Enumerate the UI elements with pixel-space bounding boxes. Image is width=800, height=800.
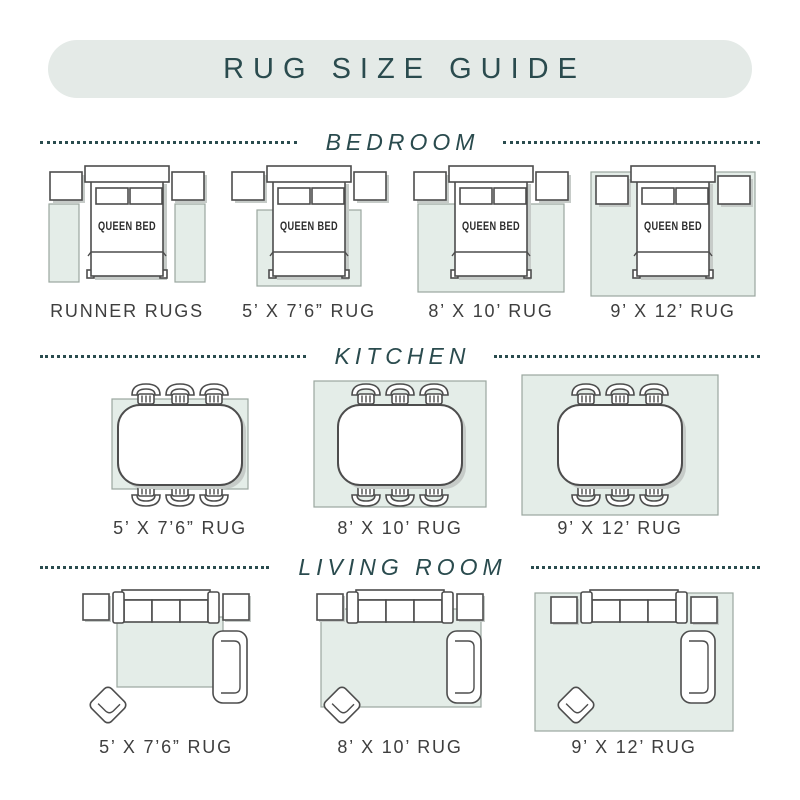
dotted-divider-left (40, 355, 306, 358)
bedroom-diagram-runner-rugs: RUNNER RUGS (42, 164, 212, 322)
armchair (681, 631, 715, 703)
bedroom-diagram-5x76: 5’ X 7’6” RUG (224, 164, 394, 322)
queen-bed (631, 166, 715, 280)
page-title: RUG SIZE GUIDE (214, 53, 586, 86)
rug-size-label: 5’ X 7’6” RUG (99, 737, 233, 758)
header-banner: RUG SIZE GUIDE (48, 40, 752, 98)
section-header-living-room: LIVING ROOM (40, 553, 760, 581)
accent-chair (88, 685, 128, 725)
armchair (447, 631, 481, 703)
kitchen-8x10-diagram (300, 374, 500, 516)
queen-bed (449, 166, 533, 280)
dotted-divider-right (503, 141, 760, 144)
dotted-divider-right (494, 355, 760, 358)
rug-size-label: 5’ X 7’6” RUG (242, 301, 376, 322)
kitchen-diagram-5x76: 5’ X 7’6” RUG (80, 374, 280, 539)
dotted-divider-left (40, 566, 269, 569)
bedroom-diagram-8x10: 8’ X 10’ RUG (406, 164, 576, 322)
nightstand-left (50, 172, 85, 203)
section-header-kitchen: KITCHEN (40, 342, 760, 370)
rug-size-label: RUNNER RUGS (50, 301, 204, 322)
living-room-diagram-8x10: 8’ X 10’ RUG (295, 585, 505, 758)
rug-size-label: 9’ X 12’ RUG (610, 301, 735, 322)
living-5x76-diagram (61, 585, 271, 735)
bedroom-row: RUNNER RUGS 5’ X 7’6” RUG 8’ X 10’ RUG (0, 164, 800, 322)
rug (117, 617, 223, 687)
queen-bed (85, 166, 169, 280)
dining-table (338, 405, 466, 489)
side-table-left (551, 597, 579, 625)
kitchen-diagram-9x12: 9’ X 12’ RUG (520, 374, 720, 539)
side-table-right (223, 594, 251, 622)
nightstand-right (718, 176, 753, 207)
bedroom-runner-diagram (42, 164, 212, 299)
sofa (113, 590, 219, 623)
rug-size-guide-page: RUG SIZE GUIDE BEDROOM RUNNER RUGS (0, 0, 800, 758)
section-title-living-room: LIVING ROOM (293, 554, 506, 581)
nightstand-right (172, 172, 207, 203)
rug-size-label: 9’ X 12’ RUG (571, 737, 696, 758)
side-table-left (317, 594, 345, 622)
living-room-diagram-9x12: 9’ X 12’ RUG (529, 585, 739, 758)
sofa (347, 590, 453, 623)
living-8x10-diagram (295, 585, 505, 735)
rug-size-label: 9’ X 12’ RUG (557, 518, 682, 539)
living-room-diagram-5x76: 5’ X 7’6” RUG (61, 585, 271, 758)
side-table-right (457, 594, 485, 622)
runner-rug-left (49, 204, 79, 282)
section-title-kitchen: KITCHEN (330, 343, 471, 370)
dining-table (118, 405, 246, 489)
nightstand-left (232, 172, 267, 203)
queen-bed (267, 166, 351, 280)
bedroom-8x10-diagram (406, 164, 576, 299)
dotted-divider-left (40, 141, 297, 144)
bedroom-5x76-diagram (224, 164, 394, 299)
kitchen-9x12-diagram (520, 374, 720, 516)
rug-size-label: 8’ X 10’ RUG (337, 518, 462, 539)
kitchen-row: 5’ X 7’6” RUG 8’ X 10’ RUG (0, 374, 800, 539)
kitchen-5x76-diagram (80, 374, 280, 516)
nightstand-right (536, 172, 571, 203)
living-9x12-diagram (529, 585, 739, 735)
nightstand-left (414, 172, 449, 203)
dining-table (558, 405, 686, 489)
side-table-left (83, 594, 111, 622)
section-header-bedroom: BEDROOM (40, 128, 760, 156)
kitchen-diagram-8x10: 8’ X 10’ RUG (300, 374, 500, 539)
nightstand-right (354, 172, 389, 203)
rug-size-label: 5’ X 7’6” RUG (113, 518, 247, 539)
side-table-right (691, 597, 719, 625)
runner-rug-right (175, 204, 205, 282)
rug-size-label: 8’ X 10’ RUG (428, 301, 553, 322)
living-room-row: 5’ X 7’6” RUG 8’ X 10’ RUG 9’ (0, 585, 800, 758)
dotted-divider-right (531, 566, 760, 569)
bedroom-9x12-diagram (588, 164, 758, 299)
bedroom-diagram-9x12: 9’ X 12’ RUG (588, 164, 758, 322)
sofa (581, 590, 687, 623)
section-title-bedroom: BEDROOM (321, 129, 480, 156)
armchair (213, 631, 247, 703)
nightstand-left (596, 176, 631, 207)
rug-size-label: 8’ X 10’ RUG (337, 737, 462, 758)
